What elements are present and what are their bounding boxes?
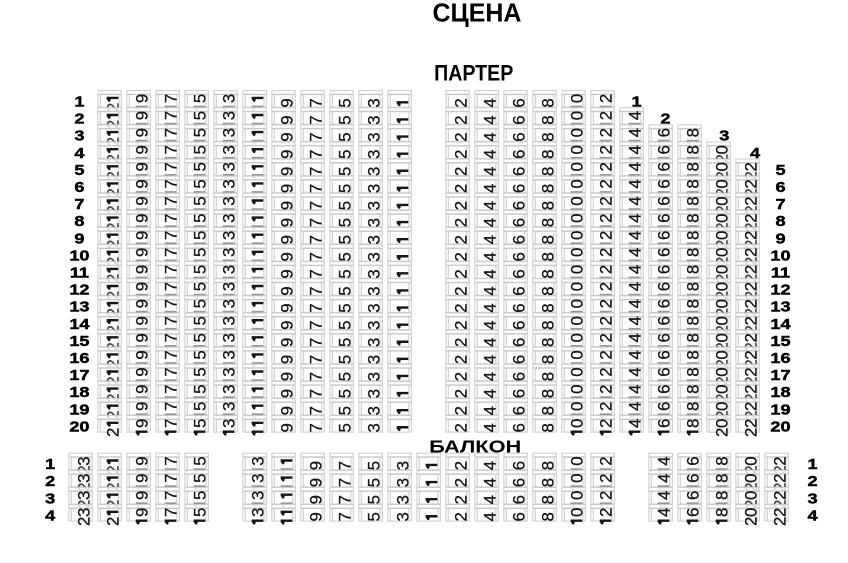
svg-text:5: 5	[335, 201, 354, 210]
svg-text:6: 6	[509, 115, 528, 124]
svg-text:4: 4	[480, 218, 499, 227]
svg-text:6: 6	[509, 286, 528, 295]
svg-text:4: 4	[480, 269, 499, 278]
svg-text:7: 7	[161, 196, 180, 205]
svg-text:9: 9	[277, 303, 296, 312]
svg-text:6: 6	[509, 321, 528, 330]
svg-text:8: 8	[538, 132, 557, 141]
svg-text:4: 4	[480, 372, 499, 381]
svg-text:7: 7	[306, 269, 325, 278]
svg-text:1: 1	[807, 457, 817, 473]
svg-text:7: 7	[306, 115, 325, 124]
svg-text:6: 6	[509, 406, 528, 415]
svg-text:9: 9	[132, 128, 151, 137]
svg-text:3: 3	[219, 128, 238, 137]
svg-text:9: 9	[132, 231, 151, 240]
svg-text:6: 6	[509, 461, 528, 470]
svg-text:5: 5	[190, 214, 209, 223]
svg-text:4: 4	[480, 423, 499, 432]
svg-text:7: 7	[161, 179, 180, 188]
svg-text:2: 2	[451, 389, 470, 398]
svg-text:8: 8	[538, 167, 557, 176]
svg-text:8: 8	[538, 338, 557, 347]
svg-text:2: 2	[596, 196, 615, 205]
svg-text:9: 9	[132, 265, 151, 274]
svg-text:0: 0	[567, 214, 586, 223]
svg-text:3: 3	[74, 456, 93, 465]
svg-text:6: 6	[509, 355, 528, 364]
svg-text:4: 4	[625, 385, 644, 394]
svg-text:7: 7	[306, 389, 325, 398]
svg-text:2: 2	[596, 402, 615, 411]
svg-text:7: 7	[161, 265, 180, 274]
svg-text:6: 6	[654, 214, 673, 223]
svg-text:2: 2	[596, 94, 615, 103]
svg-text:4: 4	[625, 248, 644, 257]
svg-text:0: 0	[567, 316, 586, 325]
svg-text:8: 8	[538, 150, 557, 159]
svg-text:7: 7	[335, 512, 354, 521]
svg-text:8: 8	[683, 179, 702, 188]
svg-text:2: 2	[451, 167, 470, 176]
svg-text:ПАРТЕР: ПАРТЕР	[434, 62, 513, 86]
svg-text:4: 4	[480, 355, 499, 364]
svg-text:7: 7	[161, 145, 180, 154]
svg-text:8: 8	[683, 248, 702, 257]
svg-text:5: 5	[335, 389, 354, 398]
svg-text:2: 2	[451, 372, 470, 381]
svg-text:3: 3	[219, 402, 238, 411]
svg-text:2: 2	[741, 231, 760, 240]
svg-text:9: 9	[132, 474, 151, 483]
svg-text:3: 3	[74, 474, 93, 483]
svg-text:4: 4	[654, 474, 673, 483]
svg-text:8: 8	[683, 419, 702, 428]
svg-text:7: 7	[335, 478, 354, 487]
svg-text:2: 2	[741, 214, 760, 223]
svg-text:2: 2	[596, 385, 615, 394]
svg-text:2: 2	[103, 428, 122, 437]
svg-text:9: 9	[132, 179, 151, 188]
svg-text:4: 4	[625, 402, 644, 411]
svg-text:6: 6	[509, 132, 528, 141]
svg-text:6: 6	[654, 316, 673, 325]
svg-text:4: 4	[480, 512, 499, 521]
svg-text:3: 3	[248, 456, 267, 465]
svg-text:8: 8	[538, 201, 557, 210]
svg-text:6: 6	[683, 456, 702, 465]
svg-text:5: 5	[335, 184, 354, 193]
svg-text:8: 8	[538, 372, 557, 381]
svg-text:5: 5	[335, 286, 354, 295]
svg-text:0: 0	[567, 402, 586, 411]
svg-text:8: 8	[683, 299, 702, 308]
svg-text:7: 7	[161, 419, 180, 428]
svg-text:8: 8	[775, 214, 785, 230]
svg-text:15: 15	[770, 334, 790, 350]
svg-text:8: 8	[538, 115, 557, 124]
svg-text:5: 5	[190, 419, 209, 428]
svg-text:19: 19	[770, 402, 790, 418]
svg-text:7: 7	[335, 495, 354, 504]
svg-text:5: 5	[190, 282, 209, 291]
svg-text:9: 9	[132, 145, 151, 154]
svg-text:8: 8	[538, 269, 557, 278]
svg-text:16: 16	[770, 351, 790, 367]
svg-text:9: 9	[306, 461, 325, 470]
svg-text:2: 2	[596, 350, 615, 359]
svg-text:4: 4	[625, 367, 644, 376]
svg-text:4: 4	[625, 299, 644, 308]
svg-text:3: 3	[45, 491, 55, 507]
svg-text:6: 6	[683, 508, 702, 517]
svg-text:9: 9	[132, 282, 151, 291]
svg-text:8: 8	[538, 235, 557, 244]
svg-text:3: 3	[219, 248, 238, 257]
svg-text:4: 4	[654, 491, 673, 500]
svg-text:14: 14	[69, 316, 90, 332]
svg-text:5: 5	[335, 167, 354, 176]
svg-text:2: 2	[596, 145, 615, 154]
svg-text:0: 0	[741, 491, 760, 500]
svg-text:4: 4	[480, 201, 499, 210]
svg-text:6: 6	[654, 145, 673, 154]
svg-text:2: 2	[596, 111, 615, 120]
svg-text:4: 4	[480, 461, 499, 470]
svg-text:0: 0	[712, 248, 731, 257]
svg-text:5: 5	[335, 150, 354, 159]
svg-text:4: 4	[625, 419, 644, 428]
svg-text:0: 0	[567, 299, 586, 308]
svg-text:8: 8	[712, 508, 731, 517]
svg-text:3: 3	[219, 196, 238, 205]
svg-text:3: 3	[364, 235, 383, 244]
svg-text:9: 9	[132, 316, 151, 325]
svg-text:6: 6	[509, 389, 528, 398]
svg-text:3: 3	[364, 372, 383, 381]
svg-text:0: 0	[567, 111, 586, 120]
svg-text:2: 2	[451, 115, 470, 124]
svg-text:0: 0	[712, 196, 731, 205]
svg-text:3: 3	[364, 98, 383, 107]
svg-text:3: 3	[393, 512, 412, 521]
svg-text:7: 7	[306, 372, 325, 381]
svg-text:2: 2	[451, 218, 470, 227]
svg-text:8: 8	[683, 367, 702, 376]
svg-text:2: 2	[451, 252, 470, 261]
svg-text:2: 2	[596, 265, 615, 274]
svg-text:5: 5	[190, 456, 209, 465]
svg-text:2: 2	[451, 184, 470, 193]
svg-text:0: 0	[712, 282, 731, 291]
svg-text:7: 7	[161, 474, 180, 483]
svg-text:3: 3	[219, 162, 238, 171]
svg-text:0: 0	[712, 299, 731, 308]
svg-text:7: 7	[161, 367, 180, 376]
svg-text:7: 7	[306, 218, 325, 227]
svg-text:6: 6	[509, 512, 528, 521]
svg-text:8: 8	[683, 128, 702, 137]
svg-text:6: 6	[509, 150, 528, 159]
svg-text:3: 3	[364, 252, 383, 261]
svg-text:8: 8	[538, 184, 557, 193]
svg-text:7: 7	[161, 231, 180, 240]
svg-text:2: 2	[451, 423, 470, 432]
svg-text:16: 16	[69, 351, 89, 367]
svg-text:5: 5	[335, 235, 354, 244]
svg-text:8: 8	[538, 355, 557, 364]
svg-text:9: 9	[132, 491, 151, 500]
svg-text:4: 4	[480, 252, 499, 261]
svg-text:0: 0	[712, 214, 731, 223]
svg-text:1: 1	[45, 457, 55, 473]
svg-text:8: 8	[538, 252, 557, 261]
svg-text:0: 0	[567, 248, 586, 257]
svg-text:3: 3	[364, 115, 383, 124]
svg-text:9: 9	[277, 201, 296, 210]
svg-text:2: 2	[451, 269, 470, 278]
svg-text:5: 5	[190, 385, 209, 394]
svg-text:0: 0	[567, 231, 586, 240]
svg-text:0: 0	[712, 162, 731, 171]
svg-text:5: 5	[335, 338, 354, 347]
svg-text:11: 11	[70, 265, 89, 281]
svg-text:2: 2	[74, 111, 84, 127]
svg-text:2: 2	[451, 478, 470, 487]
svg-text:7: 7	[161, 402, 180, 411]
svg-text:2: 2	[451, 406, 470, 415]
svg-text:9: 9	[132, 402, 151, 411]
svg-text:9: 9	[306, 512, 325, 521]
svg-text:9: 9	[132, 508, 151, 517]
svg-text:4: 4	[480, 235, 499, 244]
svg-text:18: 18	[770, 385, 790, 401]
svg-text:6: 6	[509, 338, 528, 347]
svg-text:9: 9	[132, 214, 151, 223]
svg-text:3: 3	[364, 184, 383, 193]
svg-text:9: 9	[306, 478, 325, 487]
svg-text:2: 2	[741, 196, 760, 205]
svg-text:7: 7	[161, 491, 180, 500]
svg-text:4: 4	[625, 162, 644, 171]
svg-text:3: 3	[364, 201, 383, 210]
svg-text:4: 4	[654, 508, 673, 517]
svg-text:18: 18	[69, 385, 89, 401]
svg-text:0: 0	[567, 419, 586, 428]
svg-text:4: 4	[625, 282, 644, 291]
svg-text:7: 7	[161, 316, 180, 325]
svg-text:9: 9	[277, 355, 296, 364]
svg-text:7: 7	[161, 385, 180, 394]
svg-text:9: 9	[132, 419, 151, 428]
svg-text:4: 4	[625, 111, 644, 120]
svg-text:5: 5	[74, 163, 84, 179]
svg-text:5: 5	[335, 98, 354, 107]
svg-text:0: 0	[712, 350, 731, 359]
svg-text:6: 6	[654, 282, 673, 291]
svg-text:0: 0	[741, 456, 760, 465]
svg-text:2: 2	[596, 367, 615, 376]
svg-text:0: 0	[567, 265, 586, 274]
svg-text:2: 2	[741, 162, 760, 171]
svg-text:9: 9	[277, 406, 296, 415]
svg-text:5: 5	[190, 128, 209, 137]
svg-text:2: 2	[596, 419, 615, 428]
svg-text:2: 2	[770, 491, 789, 500]
svg-text:5: 5	[190, 350, 209, 359]
svg-text:2: 2	[451, 303, 470, 312]
svg-text:6: 6	[654, 419, 673, 428]
svg-text:7: 7	[306, 286, 325, 295]
svg-text:5: 5	[190, 248, 209, 257]
svg-text:7: 7	[306, 406, 325, 415]
svg-text:9: 9	[132, 111, 151, 120]
svg-text:0: 0	[712, 385, 731, 394]
svg-text:8: 8	[683, 196, 702, 205]
svg-text:3: 3	[74, 491, 93, 500]
svg-text:4: 4	[480, 495, 499, 504]
svg-text:2: 2	[596, 231, 615, 240]
svg-text:4: 4	[480, 150, 499, 159]
svg-text:3: 3	[219, 145, 238, 154]
svg-text:6: 6	[509, 184, 528, 193]
svg-text:3: 3	[219, 111, 238, 120]
svg-text:3: 3	[364, 321, 383, 330]
svg-text:20: 20	[69, 419, 89, 435]
svg-text:0: 0	[712, 316, 731, 325]
svg-text:2: 2	[596, 162, 615, 171]
svg-text:5: 5	[335, 218, 354, 227]
svg-text:4: 4	[625, 265, 644, 274]
svg-text:7: 7	[161, 248, 180, 257]
svg-text:2: 2	[741, 350, 760, 359]
svg-text:0: 0	[567, 474, 586, 483]
svg-text:7: 7	[335, 461, 354, 470]
svg-text:17: 17	[69, 368, 89, 384]
svg-text:8: 8	[538, 98, 557, 107]
svg-text:3: 3	[364, 303, 383, 312]
svg-text:7: 7	[161, 128, 180, 137]
svg-text:2: 2	[596, 299, 615, 308]
svg-text:3: 3	[219, 350, 238, 359]
svg-text:СЦЕНА: СЦЕНА	[433, 0, 522, 27]
svg-text:7: 7	[161, 350, 180, 359]
svg-text:6: 6	[654, 231, 673, 240]
svg-text:3: 3	[364, 150, 383, 159]
svg-text:7: 7	[775, 197, 785, 213]
svg-text:4: 4	[625, 231, 644, 240]
svg-text:5: 5	[364, 461, 383, 470]
svg-text:6: 6	[74, 180, 84, 196]
svg-text:0: 0	[712, 231, 731, 240]
svg-text:6: 6	[654, 299, 673, 308]
svg-text:0: 0	[567, 333, 586, 342]
svg-text:15: 15	[69, 334, 89, 350]
svg-text:4: 4	[480, 98, 499, 107]
svg-text:2: 2	[596, 316, 615, 325]
svg-text:3: 3	[219, 282, 238, 291]
svg-text:9: 9	[132, 196, 151, 205]
svg-text:0: 0	[567, 350, 586, 359]
svg-text:3: 3	[219, 265, 238, 274]
svg-text:0: 0	[567, 145, 586, 154]
svg-text:7: 7	[306, 235, 325, 244]
svg-text:8: 8	[538, 495, 557, 504]
svg-text:9: 9	[277, 218, 296, 227]
svg-text:9: 9	[132, 248, 151, 257]
svg-text:5: 5	[190, 231, 209, 240]
svg-text:5: 5	[335, 406, 354, 415]
svg-text:2: 2	[451, 132, 470, 141]
svg-text:9: 9	[277, 184, 296, 193]
svg-text:5: 5	[190, 111, 209, 120]
svg-text:7: 7	[161, 508, 180, 517]
svg-text:2: 2	[596, 474, 615, 483]
svg-text:5: 5	[335, 269, 354, 278]
svg-text:6: 6	[509, 235, 528, 244]
svg-text:10: 10	[770, 248, 790, 264]
svg-text:3: 3	[219, 179, 238, 188]
svg-text:3: 3	[219, 367, 238, 376]
svg-text:9: 9	[132, 367, 151, 376]
svg-text:9: 9	[132, 350, 151, 359]
svg-text:2: 2	[451, 201, 470, 210]
svg-text:2: 2	[596, 456, 615, 465]
svg-text:8: 8	[712, 491, 731, 500]
svg-text:9: 9	[277, 235, 296, 244]
svg-text:3: 3	[364, 338, 383, 347]
svg-text:6: 6	[775, 180, 785, 196]
svg-text:2: 2	[596, 248, 615, 257]
svg-text:3: 3	[219, 214, 238, 223]
svg-text:2: 2	[45, 474, 55, 490]
svg-text:4: 4	[480, 338, 499, 347]
svg-text:0: 0	[567, 196, 586, 205]
svg-text:2: 2	[451, 235, 470, 244]
svg-text:0: 0	[741, 508, 760, 517]
svg-text:0: 0	[567, 508, 586, 517]
svg-text:0: 0	[712, 333, 731, 342]
svg-text:6: 6	[654, 248, 673, 257]
svg-text:8: 8	[538, 321, 557, 330]
svg-text:17: 17	[770, 368, 790, 384]
svg-text:5: 5	[364, 495, 383, 504]
svg-text:2: 2	[741, 367, 760, 376]
svg-text:7: 7	[306, 321, 325, 330]
svg-text:8: 8	[683, 402, 702, 411]
svg-text:6: 6	[654, 265, 673, 274]
svg-text:2: 2	[451, 512, 470, 521]
svg-text:8: 8	[712, 456, 731, 465]
svg-text:6: 6	[509, 478, 528, 487]
svg-text:7: 7	[161, 456, 180, 465]
svg-text:6: 6	[509, 98, 528, 107]
svg-text:3: 3	[248, 474, 267, 483]
svg-text:6: 6	[654, 333, 673, 342]
svg-text:0: 0	[712, 145, 731, 154]
svg-text:7: 7	[306, 355, 325, 364]
svg-text:5: 5	[190, 474, 209, 483]
svg-text:5: 5	[364, 512, 383, 521]
svg-text:3: 3	[219, 419, 238, 428]
svg-text:8: 8	[683, 333, 702, 342]
svg-text:0: 0	[567, 94, 586, 103]
svg-text:9: 9	[277, 167, 296, 176]
svg-text:4: 4	[74, 145, 85, 161]
svg-text:8: 8	[538, 406, 557, 415]
svg-text:8: 8	[538, 461, 557, 470]
svg-text:4: 4	[807, 508, 818, 524]
